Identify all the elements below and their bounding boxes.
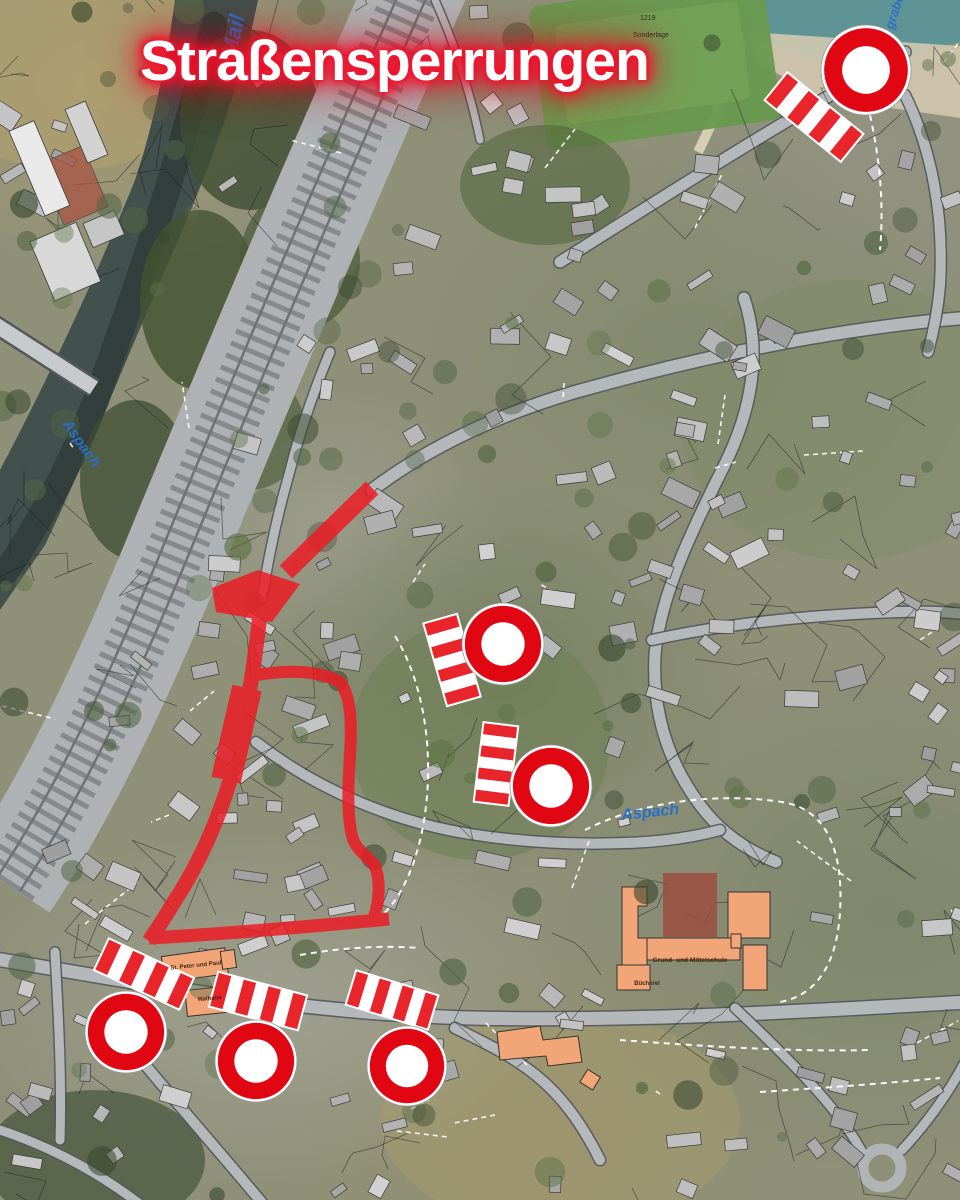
no-entry-sign [821, 25, 911, 115]
tree [158, 232, 170, 244]
parcel-line [871, 811, 916, 879]
building [469, 5, 488, 19]
building [393, 262, 413, 276]
tree [603, 721, 614, 732]
tree [755, 142, 782, 169]
tree [505, 316, 518, 329]
building [330, 1183, 347, 1198]
tree [392, 224, 404, 236]
tree [0, 688, 28, 717]
building [937, 630, 960, 656]
building [556, 472, 588, 485]
tree [87, 1146, 117, 1176]
tree [10, 190, 38, 218]
tree [1, 581, 12, 592]
tree [104, 739, 117, 752]
tree [808, 776, 836, 804]
building [498, 586, 521, 604]
tree [598, 634, 625, 661]
building [328, 903, 356, 916]
building [709, 620, 734, 634]
parcel-line [132, 840, 176, 891]
building [545, 187, 581, 203]
building [304, 889, 323, 911]
building [403, 424, 426, 447]
building [502, 178, 524, 195]
building [661, 477, 700, 509]
tree [427, 740, 455, 768]
tree [673, 1080, 703, 1110]
tree [940, 51, 956, 67]
building [584, 521, 602, 540]
tree [378, 341, 400, 363]
parcel-line [34, 553, 92, 578]
building [647, 559, 674, 578]
no-entry-sign [85, 991, 167, 1073]
parcel-line-dashed [797, 841, 851, 881]
building [480, 92, 503, 115]
building [629, 573, 652, 588]
building [19, 997, 40, 1016]
building [203, 1025, 218, 1039]
tree [609, 533, 638, 562]
tree [621, 693, 642, 714]
building [173, 718, 201, 745]
building [405, 224, 441, 250]
tree [464, 772, 475, 783]
parcel-line [742, 1066, 794, 1161]
tree [262, 763, 286, 787]
building [99, 915, 133, 941]
building [928, 703, 948, 724]
building [539, 983, 565, 1008]
building [538, 858, 566, 868]
parcel-line [275, 629, 315, 698]
tree [16, 575, 33, 592]
tree [5, 389, 30, 414]
building [0, 1009, 16, 1025]
parcel-line-dashed [413, 564, 425, 582]
tree [186, 575, 213, 602]
building [319, 379, 333, 400]
building [0, 163, 26, 184]
map-canvas: MailAspachAspachgraben1219SonderlageSt. … [0, 0, 960, 1200]
no-entry-sign [510, 745, 592, 827]
parcel-line-dashed [151, 815, 169, 822]
tree [535, 1157, 566, 1188]
building [237, 793, 248, 805]
tree [715, 341, 733, 359]
building [901, 1044, 917, 1061]
tree [624, 638, 635, 649]
building [900, 1027, 920, 1048]
tree [71, 1062, 86, 1077]
building [611, 590, 625, 605]
tree [61, 860, 83, 882]
tree [230, 430, 248, 448]
parcel-line [819, 623, 885, 701]
building [768, 529, 784, 541]
building [889, 807, 901, 816]
tree [897, 910, 915, 928]
building [339, 651, 362, 671]
building [597, 280, 619, 301]
tree [150, 282, 164, 296]
tree [320, 133, 341, 154]
tree [165, 140, 185, 160]
tree [143, 95, 169, 121]
building [168, 791, 200, 821]
building [839, 192, 855, 207]
parcel-label: 1219 [640, 15, 656, 22]
tree [413, 1104, 436, 1127]
building [540, 589, 576, 609]
tree [478, 445, 496, 463]
tree [462, 411, 488, 437]
tree [660, 458, 677, 475]
building [198, 621, 221, 638]
tree [498, 704, 516, 722]
building [382, 888, 402, 910]
tree [921, 461, 933, 473]
building [71, 897, 100, 919]
building [724, 1138, 747, 1151]
building [898, 150, 916, 170]
tree [115, 702, 142, 729]
no-entry-sign [367, 1026, 447, 1106]
tree [319, 447, 343, 471]
building [921, 746, 936, 761]
building [346, 339, 379, 362]
tree [96, 193, 121, 218]
stream-label: Aspach [620, 801, 680, 824]
tree [587, 412, 613, 438]
tree [224, 533, 251, 560]
no-entry-sign [462, 603, 544, 685]
tree [703, 34, 720, 51]
building [922, 919, 953, 937]
roundabout [863, 1149, 901, 1187]
building [545, 332, 572, 355]
tree [313, 317, 340, 344]
building [507, 103, 530, 126]
parcel-line [552, 933, 601, 975]
building [581, 989, 604, 1006]
building [810, 912, 834, 925]
page-title: Straßensperrungen [140, 28, 649, 94]
tree [72, 2, 93, 23]
tree [291, 939, 320, 968]
building [234, 869, 268, 883]
tree [647, 279, 670, 302]
building [361, 363, 373, 374]
parcel-line-dashed [190, 691, 214, 711]
building [330, 1093, 350, 1106]
tree [913, 801, 930, 818]
building [656, 511, 681, 531]
parcel-line [695, 658, 785, 680]
building [687, 270, 713, 291]
no-entry-sign [215, 1020, 297, 1102]
building [908, 681, 930, 702]
tree [8, 952, 35, 979]
tree [185, 206, 197, 218]
building [866, 163, 884, 181]
tree [729, 786, 751, 808]
building [951, 762, 960, 774]
building [842, 564, 860, 580]
tree [512, 887, 541, 916]
tree [777, 1132, 787, 1142]
tree [292, 727, 309, 744]
tree [709, 1056, 739, 1086]
tree [407, 582, 434, 609]
building [806, 1138, 826, 1159]
tree [287, 413, 318, 444]
tree [297, 0, 325, 25]
building [591, 461, 616, 485]
building [679, 584, 705, 606]
building [694, 154, 719, 174]
road-closure-map: MailAspachAspachgraben1219SonderlageSt. … [0, 0, 960, 1200]
building [316, 557, 331, 570]
tree [499, 983, 519, 1003]
tree [54, 223, 73, 242]
building [914, 609, 942, 631]
building [392, 851, 414, 867]
tree [922, 59, 934, 71]
tree [24, 479, 46, 501]
building [785, 690, 819, 707]
tree [100, 71, 116, 87]
building [159, 1085, 192, 1109]
tree [628, 512, 656, 540]
building [830, 1107, 858, 1132]
building [703, 542, 730, 564]
building [282, 696, 316, 721]
tree [921, 121, 941, 141]
tree [775, 467, 799, 491]
building [927, 785, 955, 797]
tree [892, 207, 917, 232]
tree [574, 488, 593, 507]
poi-label: Bücherei [634, 981, 660, 987]
building [553, 288, 584, 316]
building [105, 861, 141, 891]
tree [259, 384, 270, 395]
building [320, 622, 333, 639]
tree [209, 1187, 224, 1200]
tree [439, 958, 466, 985]
sports-court [663, 873, 717, 937]
building [504, 918, 541, 940]
tree [920, 339, 934, 353]
tree [587, 331, 612, 356]
building [730, 538, 769, 570]
tree [17, 231, 37, 251]
tree [253, 489, 278, 514]
tree [324, 196, 347, 219]
building [930, 1030, 949, 1045]
building [368, 1174, 390, 1198]
building [364, 510, 397, 534]
building [710, 181, 746, 213]
building [17, 979, 35, 998]
tree [51, 287, 73, 309]
tree [122, 207, 148, 233]
poi-label: Grund- und Mittelschule [653, 957, 728, 964]
building [835, 664, 868, 691]
building [266, 800, 282, 812]
tree [399, 402, 417, 420]
tree [823, 492, 844, 513]
tree [495, 383, 526, 414]
tree [636, 1082, 648, 1094]
tree [864, 231, 888, 255]
building [942, 1163, 960, 1186]
building [698, 634, 721, 655]
building [191, 661, 219, 679]
tree [123, 3, 134, 14]
tree [842, 338, 864, 360]
building [812, 416, 829, 428]
tree [634, 880, 659, 905]
tree [405, 450, 425, 470]
tree [354, 260, 381, 287]
building [572, 201, 596, 217]
building [680, 191, 709, 210]
parcel-line [783, 206, 820, 230]
tree [293, 448, 311, 466]
tree [84, 701, 104, 721]
tree [797, 261, 811, 275]
building [478, 543, 495, 560]
tree [433, 360, 457, 384]
building [905, 246, 926, 265]
tree [536, 562, 557, 583]
tree [710, 982, 736, 1008]
building [900, 474, 916, 487]
